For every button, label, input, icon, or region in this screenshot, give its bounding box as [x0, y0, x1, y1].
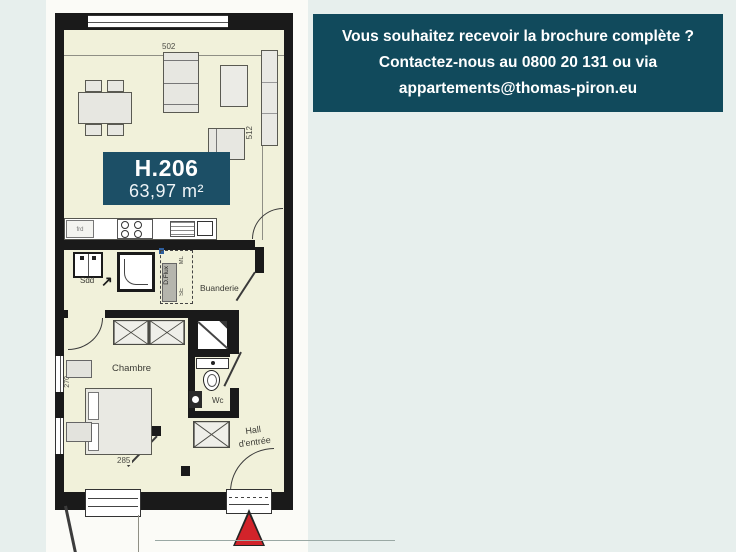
radiator — [66, 360, 92, 378]
window-bedroom-lower — [55, 418, 64, 454]
shower — [117, 252, 155, 292]
threshold-line — [229, 497, 269, 498]
window-sill-bottom — [85, 489, 141, 517]
room-label-chambre: Chambre — [112, 364, 151, 374]
direction-arrow-icon: ↗ — [101, 274, 113, 288]
window-top — [88, 15, 228, 28]
room-label-sdd: Sdd — [80, 277, 94, 285]
toilet-bowl — [207, 374, 217, 387]
banner-line-2: Contactez-nous au 0800 20 131 ou via — [313, 50, 723, 76]
real-estate-flyer: Vous souhaitez recevoir la brochure comp… — [0, 0, 736, 552]
stove-burner — [121, 230, 129, 238]
sill-line — [88, 498, 138, 499]
washbasin-cabinet — [73, 252, 103, 278]
room-label-buanderie: Buanderie — [200, 284, 239, 293]
dimension-bed-width: 285 — [115, 457, 132, 465]
wall-door-stub — [181, 466, 190, 476]
dimension-living-depth: 512 — [246, 126, 254, 139]
window-bedroom-upper — [55, 356, 64, 392]
sofa-cushion-divider — [164, 83, 198, 84]
water-heater-dial — [192, 396, 199, 403]
wall-door-stub — [152, 426, 161, 436]
threshold-line — [229, 504, 269, 505]
wall-middle-stub — [64, 310, 68, 318]
hall-closet — [193, 421, 230, 448]
room-label-wc: Wc — [212, 397, 224, 405]
sink-basin — [197, 221, 213, 236]
window-glass-line — [88, 22, 228, 23]
sofa-armrest — [164, 53, 198, 61]
contact-banner: Vous souhaitez recevoir la brochure comp… — [313, 14, 723, 112]
site-line-vertical — [138, 515, 139, 552]
sill-line — [88, 506, 138, 507]
dining-table — [78, 92, 132, 124]
window-glass-line — [60, 356, 61, 392]
wardrobe — [149, 320, 185, 345]
tap-icon — [211, 361, 215, 365]
banner-line-1: Vous souhaitez recevoir la brochure comp… — [313, 24, 723, 50]
cabinet-shelf-line — [262, 113, 277, 114]
stove-burner — [134, 230, 142, 238]
water-heater — [189, 391, 202, 408]
unit-badge: H.206 63,97 m² — [103, 152, 230, 205]
wall-right — [284, 13, 293, 510]
wall-middle — [105, 310, 239, 318]
dryer-label: SE — [179, 288, 185, 296]
wardrobe — [113, 320, 149, 345]
sofa — [163, 52, 199, 113]
chair — [107, 80, 124, 92]
stove-burner — [121, 221, 129, 229]
window-glass-line — [60, 418, 61, 454]
tap-icon — [80, 256, 84, 260]
wall-cabinet — [261, 50, 278, 146]
unit-area: 63,97 m² — [103, 181, 230, 201]
duct-shaft — [195, 318, 230, 352]
wc-washbasin — [196, 358, 229, 369]
wall-duct-bottom — [195, 352, 230, 357]
chair — [107, 124, 124, 136]
tap-icon — [92, 256, 96, 260]
wall-wc-bottom — [188, 411, 239, 418]
chair — [85, 124, 102, 136]
side-table — [220, 65, 248, 107]
wall-wc-right-upper — [230, 318, 239, 354]
pillow — [88, 392, 99, 420]
cabinet-shelf-line — [262, 82, 277, 83]
chair — [85, 80, 102, 92]
sofa-armrest — [164, 104, 198, 112]
shower-tray-line — [124, 259, 148, 285]
ventilation-label: D.Flux — [164, 266, 171, 285]
stove-burner — [134, 221, 142, 229]
dimension-living-width: 502 — [160, 43, 177, 51]
sink-drainboard — [170, 221, 195, 237]
washing-machine-label: ML — [179, 256, 185, 264]
banner-line-3: appartements@thomas-piron.eu — [313, 76, 723, 102]
fridge: frd — [66, 220, 94, 238]
bed — [85, 388, 152, 455]
site-line-horizontal — [155, 540, 395, 541]
radiator — [66, 422, 92, 442]
washbasin-divider — [88, 254, 89, 276]
unit-number: H.206 — [103, 156, 230, 181]
wall-hall — [255, 247, 264, 273]
